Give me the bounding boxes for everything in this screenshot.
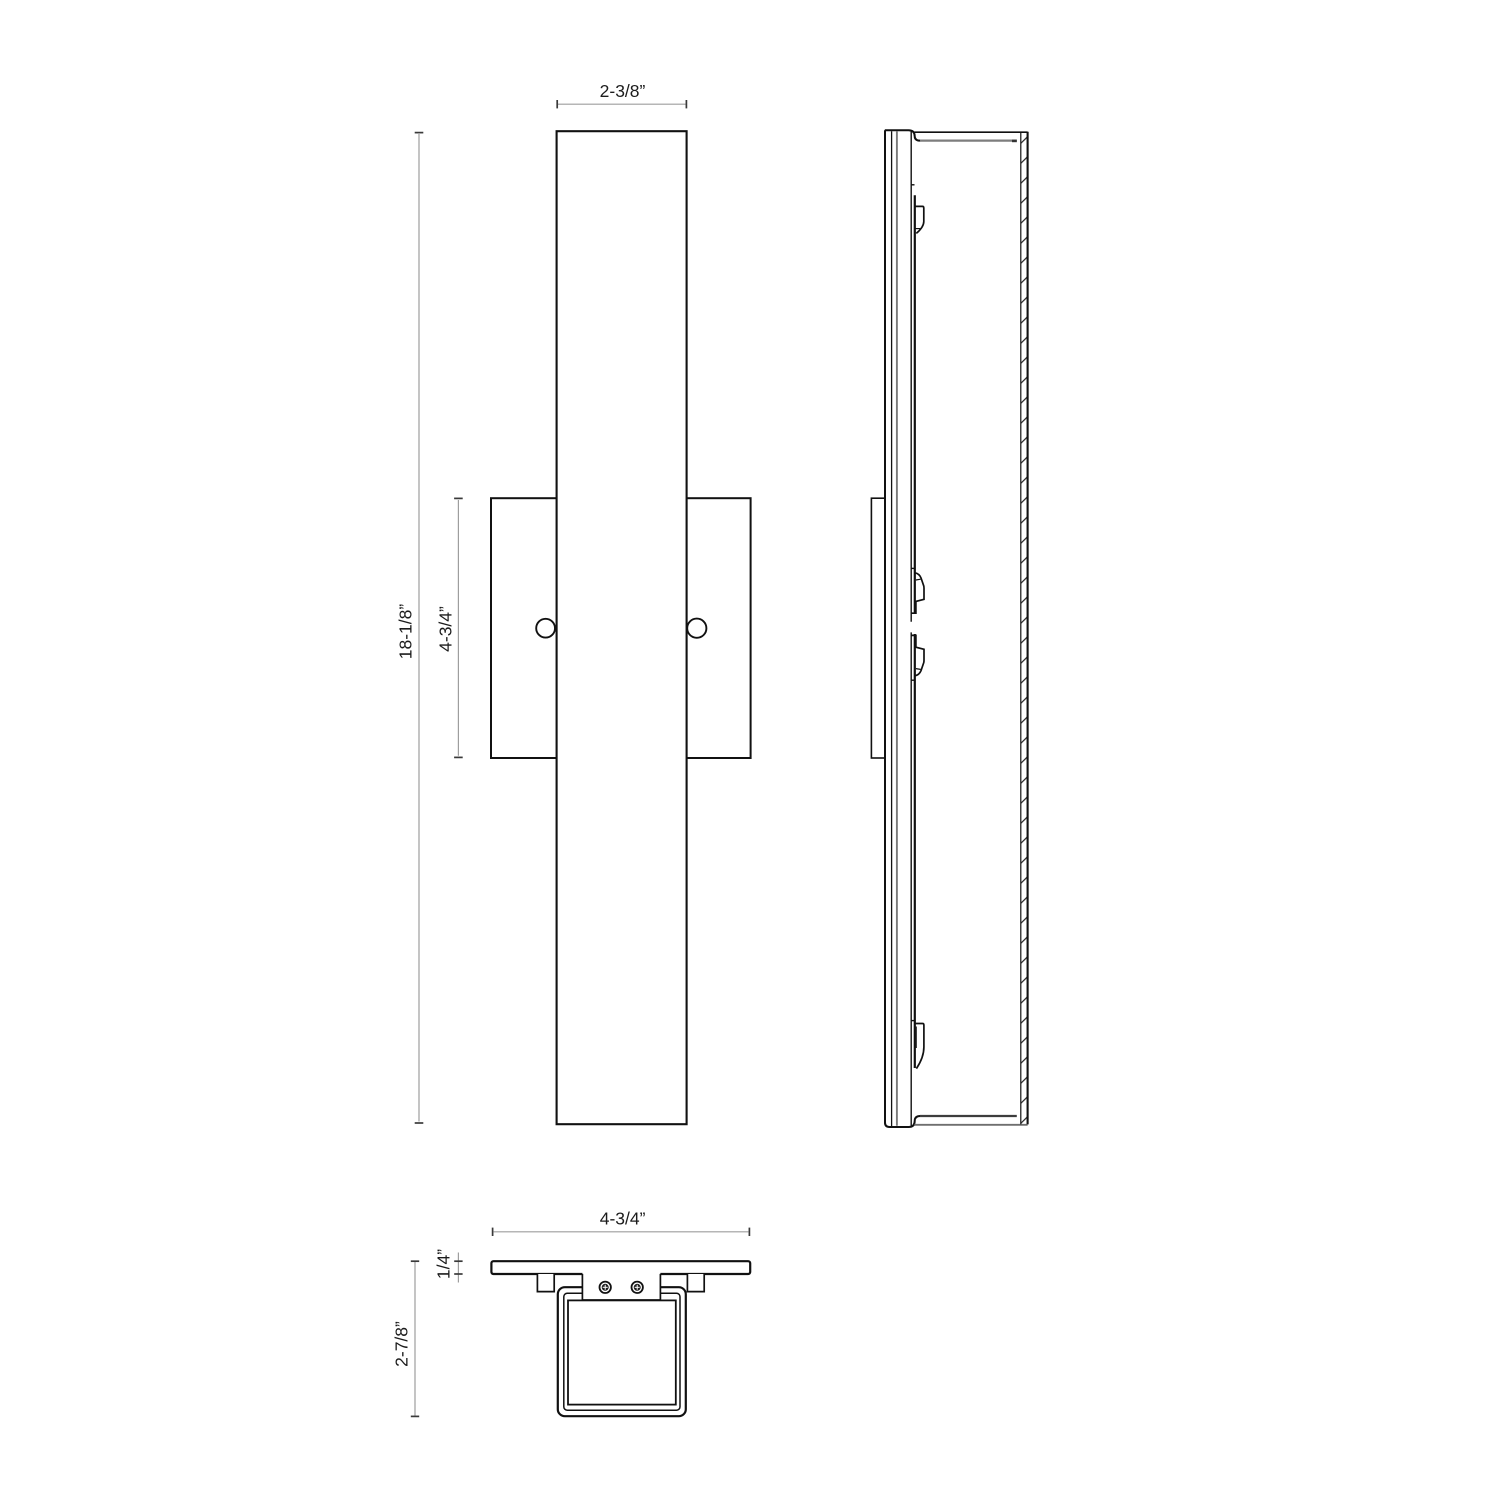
svg-text:1/4”: 1/4” xyxy=(434,1249,454,1279)
svg-text:4-3/4”: 4-3/4” xyxy=(600,1209,646,1229)
svg-text:2-7/8”: 2-7/8” xyxy=(392,1321,412,1367)
svg-text:18-1/8”: 18-1/8” xyxy=(396,604,416,660)
svg-text:4-3/4”: 4-3/4” xyxy=(436,606,456,652)
svg-text:2-3/8”: 2-3/8” xyxy=(600,81,646,101)
